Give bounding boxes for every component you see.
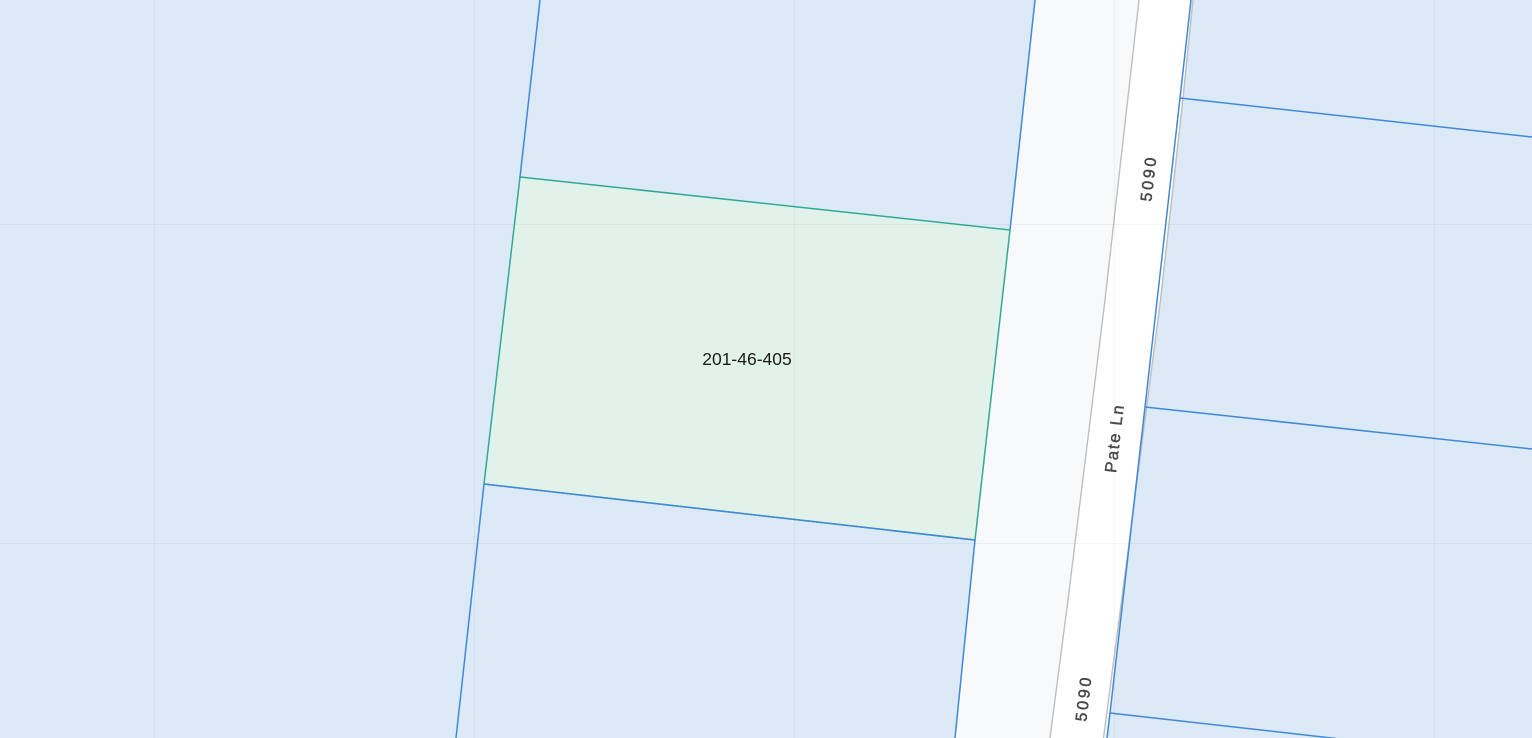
svg-text:201-46-405: 201-46-405 — [702, 349, 792, 369]
